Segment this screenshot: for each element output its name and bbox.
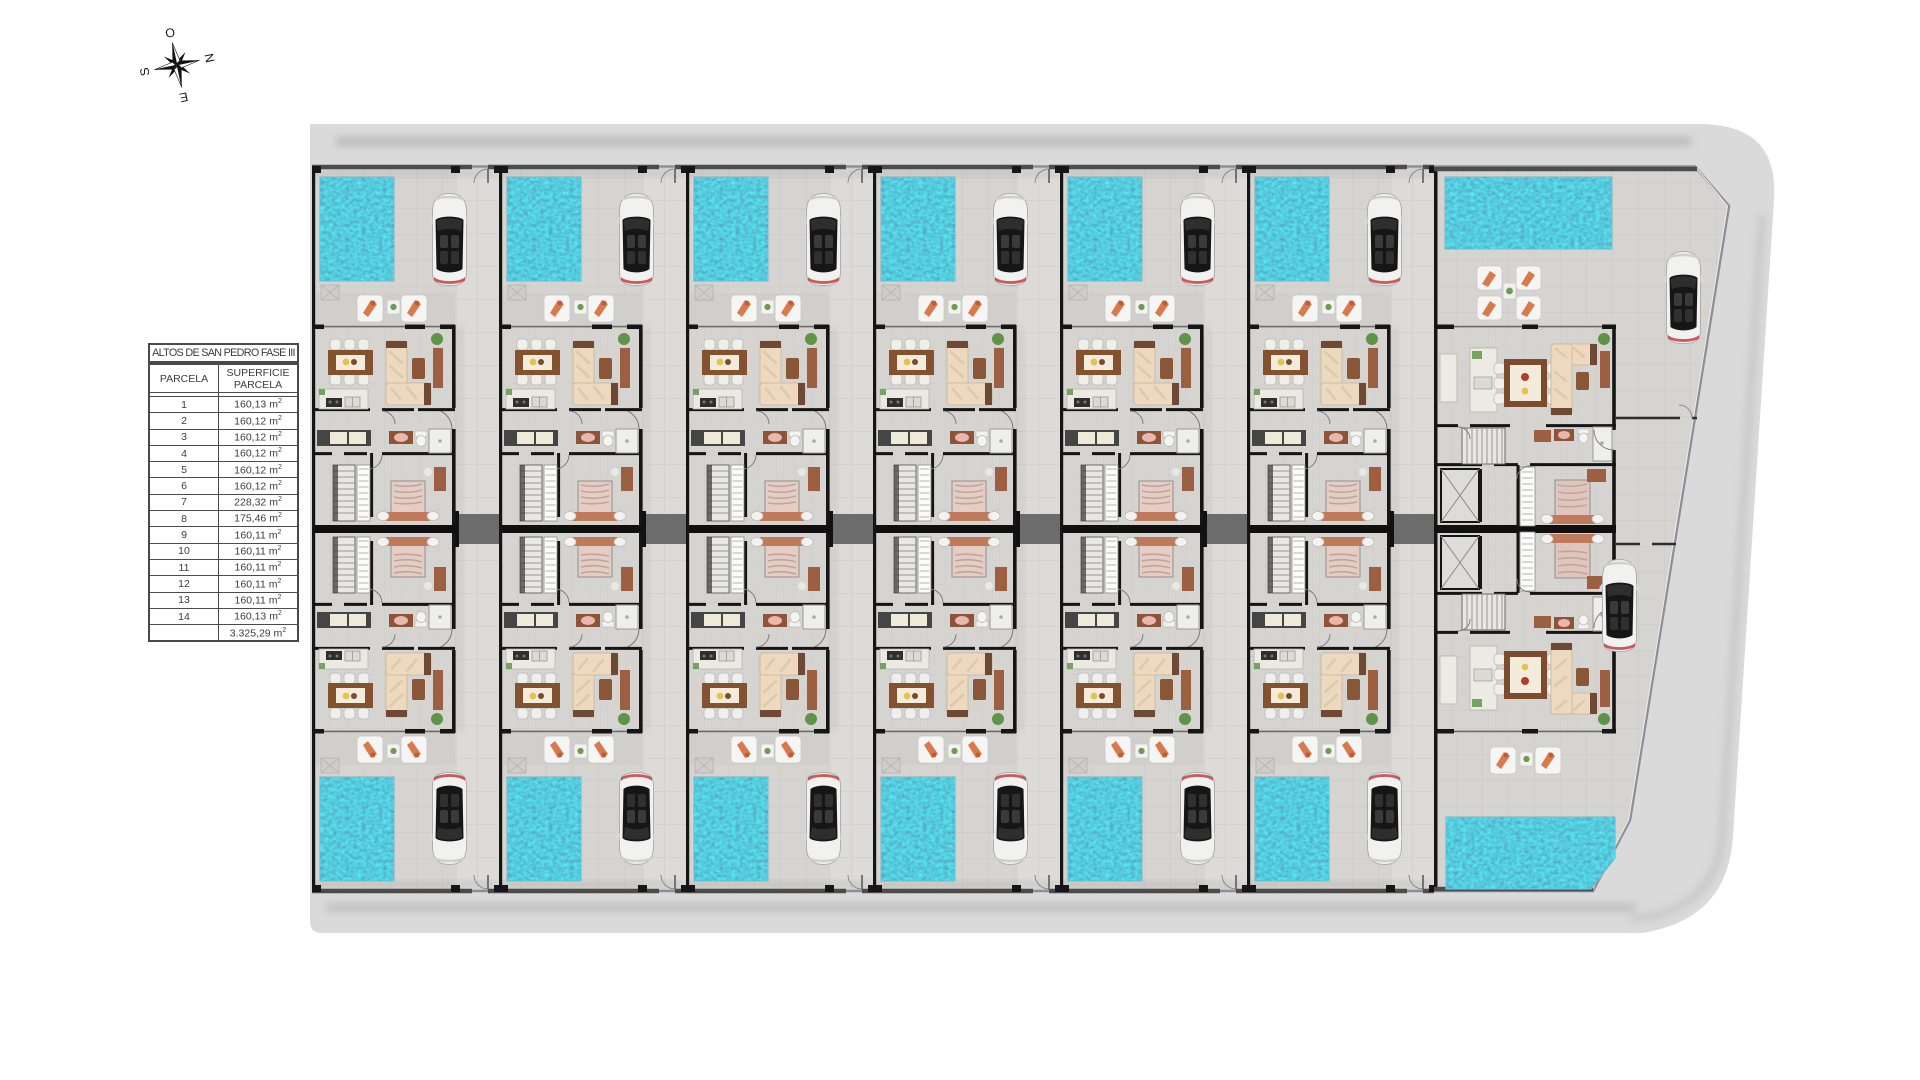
svg-text:O: O [164, 25, 177, 41]
svg-text:S: S [137, 66, 152, 77]
svg-text:E: E [178, 89, 189, 104]
svg-text:N: N [201, 52, 217, 64]
